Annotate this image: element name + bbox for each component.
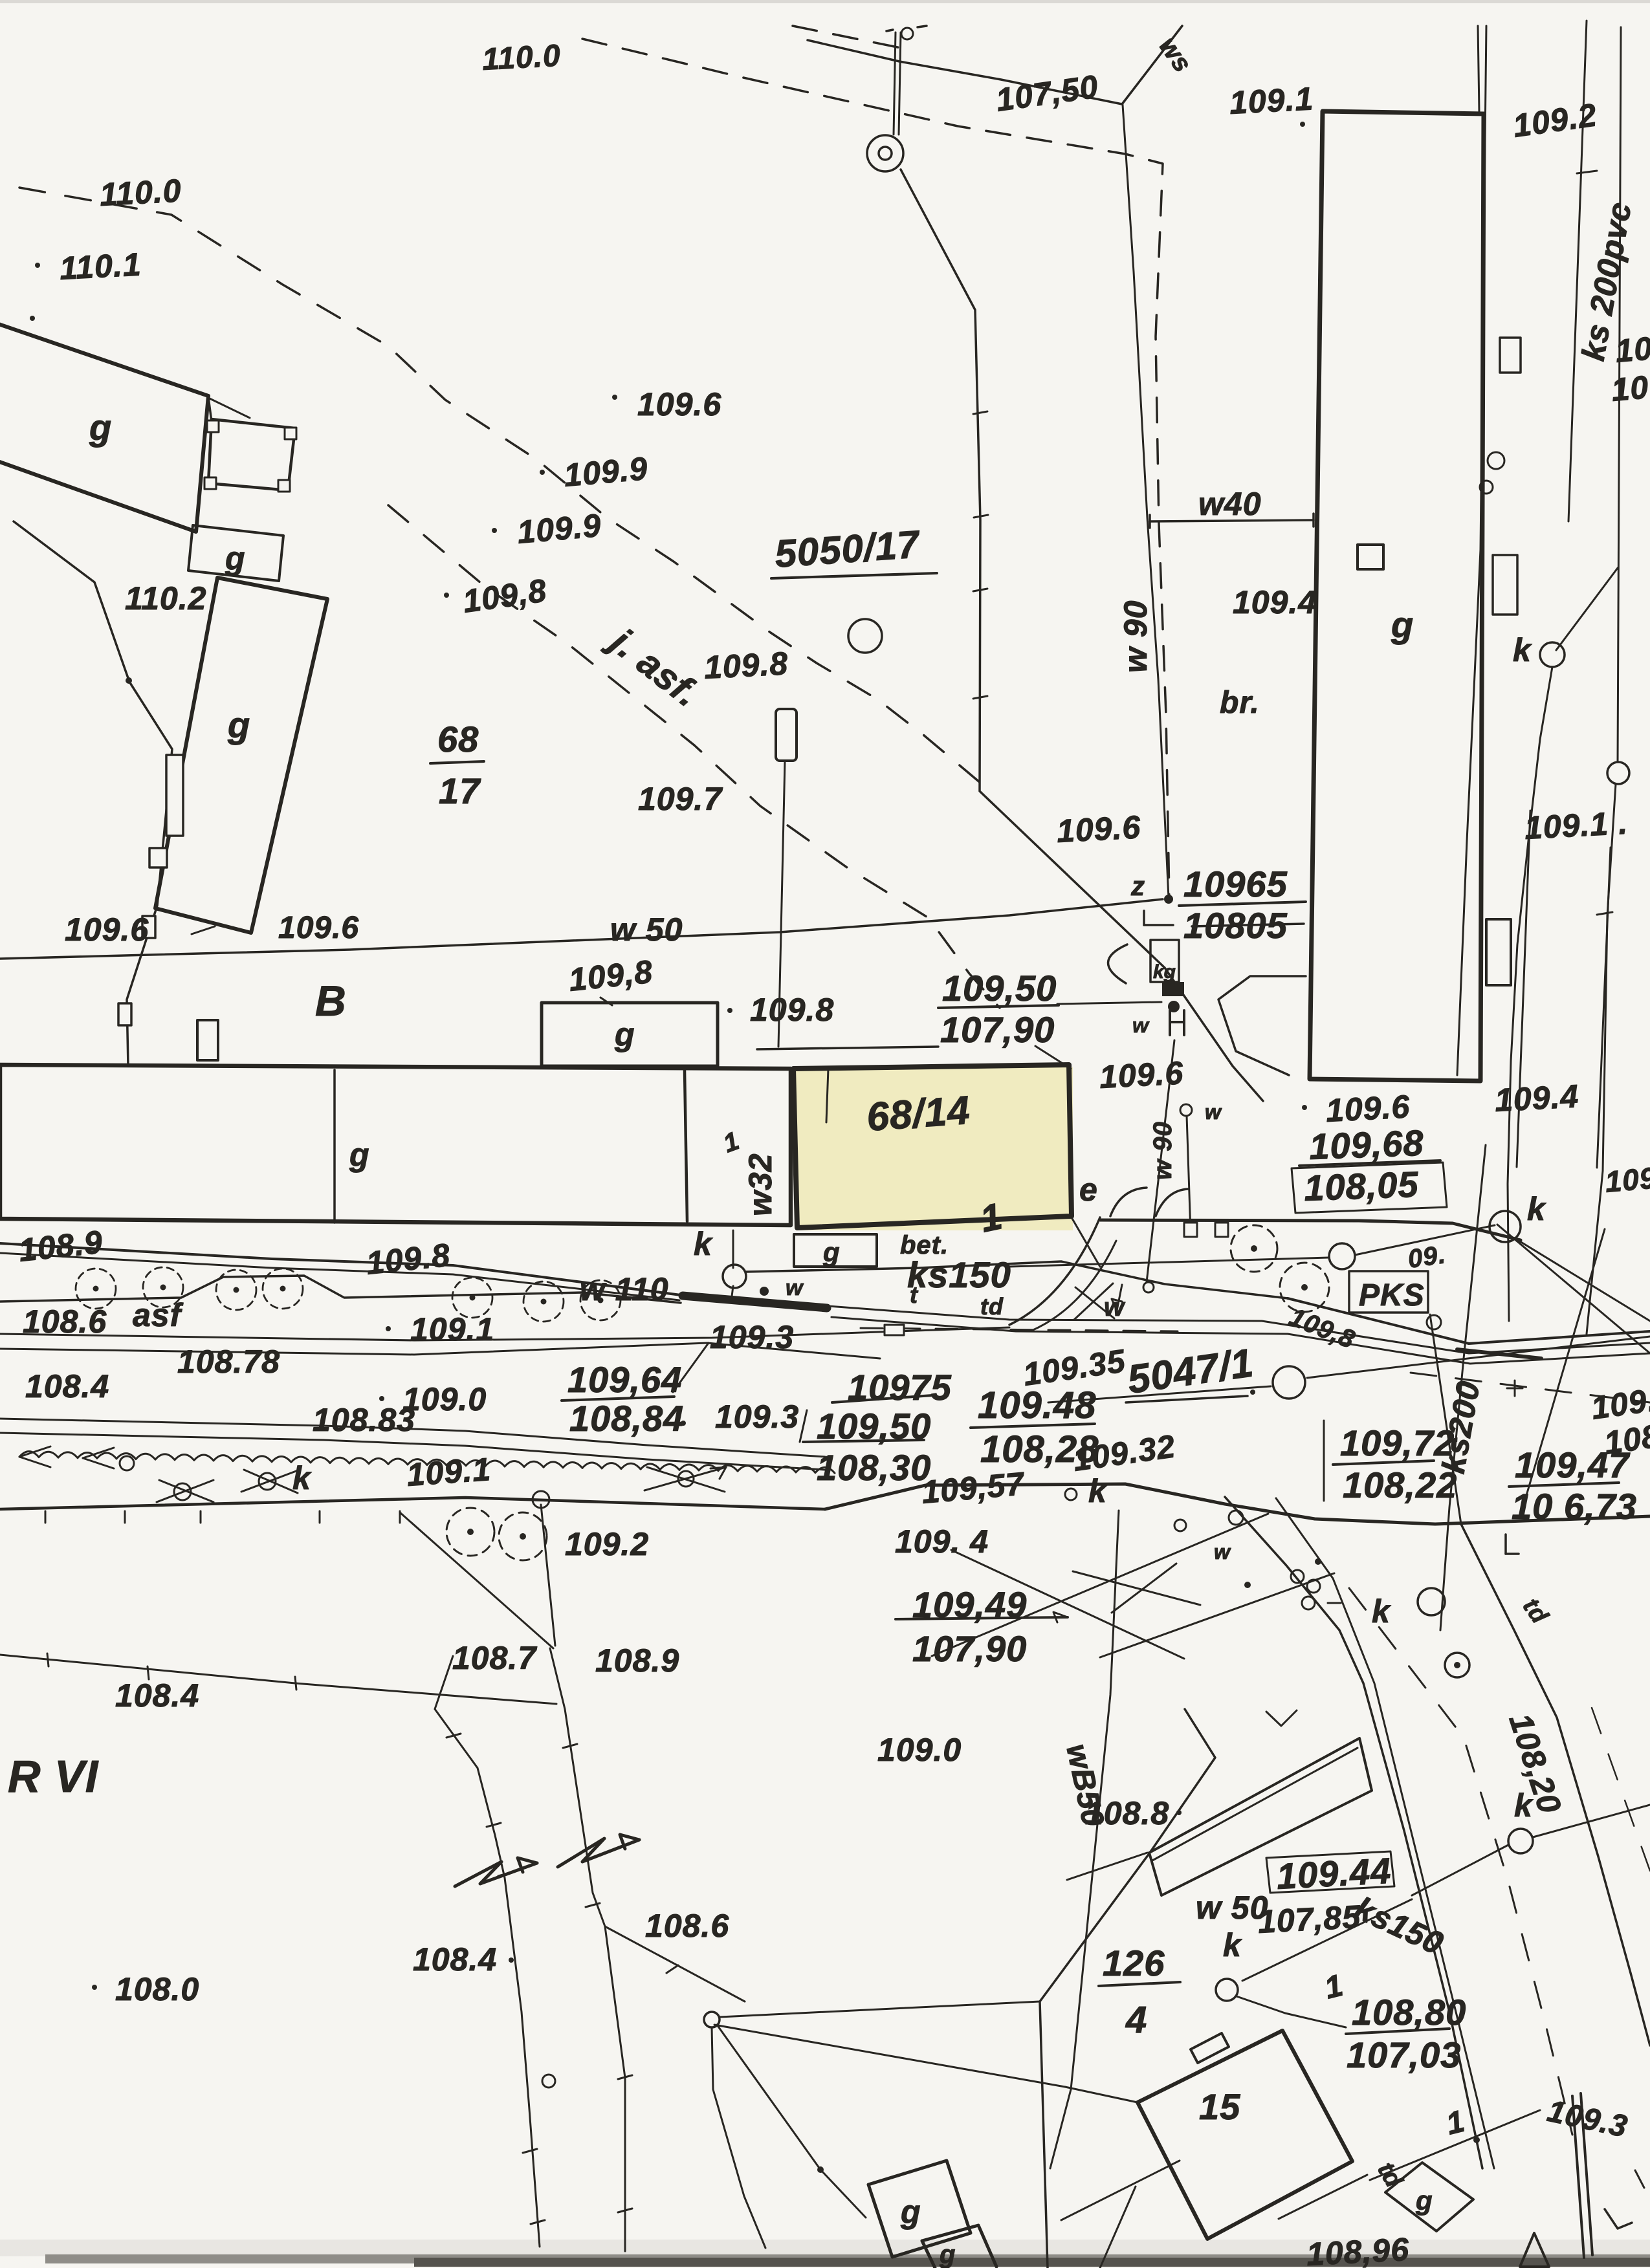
svg-text:107,90: 107,90 [912, 1628, 1027, 1669]
svg-text:109. 4: 109. 4 [895, 1523, 989, 1560]
svg-text:107,90: 107,90 [940, 1009, 1055, 1050]
svg-text:10: 10 [1610, 369, 1650, 408]
svg-text:68/14: 68/14 [865, 1088, 972, 1140]
svg-text:109,47: 109,47 [1515, 1445, 1631, 1485]
svg-text:g: g [89, 407, 112, 448]
svg-text:w 90: w 90 [1117, 600, 1154, 673]
svg-text:109.4: 109.4 [1494, 1078, 1580, 1118]
svg-text:t: t [910, 1281, 919, 1308]
svg-text:110.0: 110.0 [481, 39, 562, 77]
svg-text:109.1 .: 109.1 . [1524, 805, 1629, 846]
svg-text:109.9: 109.9 [562, 450, 650, 494]
svg-text:108.4: 108.4 [25, 1368, 109, 1404]
svg-text:108,05: 108,05 [1303, 1164, 1419, 1208]
svg-text:PKS: PKS [1359, 1278, 1425, 1313]
svg-text:110.1: 110.1 [59, 246, 142, 287]
svg-text:108.0: 108.0 [115, 1971, 199, 2007]
svg-text:109.1: 109.1 [406, 1451, 492, 1493]
svg-text:td: td [980, 1293, 1004, 1320]
svg-text:g: g [822, 1237, 841, 1267]
svg-text:10: 10 [1614, 330, 1650, 369]
svg-text:108,84: 108,84 [569, 1398, 684, 1439]
svg-text:108.8: 108.8 [1085, 1795, 1169, 1831]
svg-text:10965: 10965 [1183, 864, 1288, 904]
svg-text:108.7: 108.7 [452, 1640, 537, 1676]
svg-text:g: g [939, 2240, 956, 2268]
svg-text:109.7: 109.7 [638, 781, 723, 817]
svg-text:k: k [1372, 1593, 1391, 1630]
svg-text:ks150: ks150 [907, 1254, 1011, 1295]
svg-text:w: w [1132, 1014, 1150, 1037]
svg-text:68: 68 [437, 719, 479, 759]
svg-text:108.6: 108.6 [645, 1908, 729, 1944]
svg-text:g: g [349, 1137, 370, 1173]
svg-text:108,80: 108,80 [1352, 1992, 1466, 2033]
svg-text:109.0: 109.0 [877, 1732, 962, 1768]
svg-text:109,50: 109,50 [942, 968, 1057, 1009]
svg-text:17: 17 [439, 770, 481, 811]
svg-text:107,85: 107,85 [1257, 1899, 1362, 1940]
svg-text:g: g [614, 1016, 635, 1052]
svg-text:e: e [1079, 1172, 1098, 1208]
svg-text:g: g [900, 2194, 921, 2230]
svg-text:108,22: 108,22 [1343, 1465, 1457, 1505]
svg-text:109,68: 109,68 [1308, 1122, 1424, 1167]
svg-text:108.4: 108.4 [413, 1941, 497, 1978]
svg-text:109.1: 109.1 [1229, 80, 1315, 121]
svg-text:109.3: 109.3 [715, 1399, 799, 1435]
svg-text:126: 126 [1103, 1943, 1165, 1983]
svg-text:asf: asf [133, 1297, 184, 1333]
svg-text:br.: br. [1220, 686, 1260, 720]
svg-text:110.2: 110.2 [125, 580, 206, 616]
svg-text:109,72: 109,72 [1340, 1423, 1455, 1463]
svg-text:09.: 09. [1406, 1240, 1447, 1274]
svg-text:109.6: 109.6 [637, 386, 721, 422]
svg-text:109,64: 109,64 [567, 1359, 682, 1400]
svg-text:R VI: R VI [8, 1751, 99, 1802]
svg-text:k: k [1088, 1473, 1108, 1509]
svg-text:109.6: 109.6 [1056, 809, 1142, 849]
svg-text:108,30: 108,30 [817, 1447, 931, 1488]
svg-text:109.6: 109.6 [65, 911, 149, 948]
svg-text:k: k [1527, 1191, 1546, 1227]
svg-text:w 110: w 110 [580, 1271, 669, 1307]
svg-text:110.0: 110.0 [99, 172, 182, 213]
svg-text:B: B [315, 977, 347, 1025]
svg-text:w: w [1214, 1540, 1231, 1564]
svg-text:109.6: 109.6 [278, 911, 359, 945]
svg-text:w: w [1205, 1100, 1222, 1124]
svg-text:108,28: 108,28 [980, 1428, 1099, 1470]
svg-text:4: 4 [1125, 1999, 1147, 2041]
svg-text:w40: w40 [1198, 486, 1262, 522]
svg-text:g: g [1415, 2185, 1433, 2216]
svg-text:109.8: 109.8 [750, 992, 834, 1028]
svg-text:109.1: 109.1 [410, 1311, 494, 1347]
svg-text:w: w [786, 1276, 804, 1300]
svg-text:109.2: 109.2 [565, 1526, 649, 1562]
svg-text:w 50: w 50 [610, 911, 683, 948]
svg-text:k: k [694, 1226, 713, 1262]
svg-text:w 90: w 90 [1149, 1121, 1177, 1180]
svg-text:108.4: 108.4 [115, 1677, 199, 1714]
svg-text:z: z [1130, 871, 1145, 901]
svg-text:108.78: 108.78 [177, 1344, 280, 1380]
svg-text:109.9: 109.9 [516, 507, 603, 551]
svg-text:108.9: 108.9 [595, 1642, 679, 1679]
svg-text:109.48: 109.48 [978, 1384, 1096, 1426]
svg-text:109.8: 109.8 [703, 645, 789, 686]
svg-text:k: k [1223, 1927, 1242, 1963]
svg-text:108.83: 108.83 [313, 1402, 415, 1438]
svg-text:g: g [1391, 604, 1414, 645]
svg-text:w32: w32 [742, 1153, 778, 1216]
svg-text:109,: 109, [1603, 1160, 1650, 1199]
svg-text:109.4: 109.4 [1233, 584, 1317, 620]
svg-text:107,03: 107,03 [1347, 2034, 1461, 2075]
svg-text:k: k [292, 1460, 312, 1496]
svg-text:k: k [1513, 632, 1532, 668]
svg-text:kg: kg [1153, 961, 1176, 983]
svg-text:g: g [227, 704, 250, 745]
svg-text:108,96: 108,96 [1306, 2231, 1411, 2268]
svg-text:g: g [225, 540, 246, 576]
svg-text:15: 15 [1199, 2086, 1240, 2127]
